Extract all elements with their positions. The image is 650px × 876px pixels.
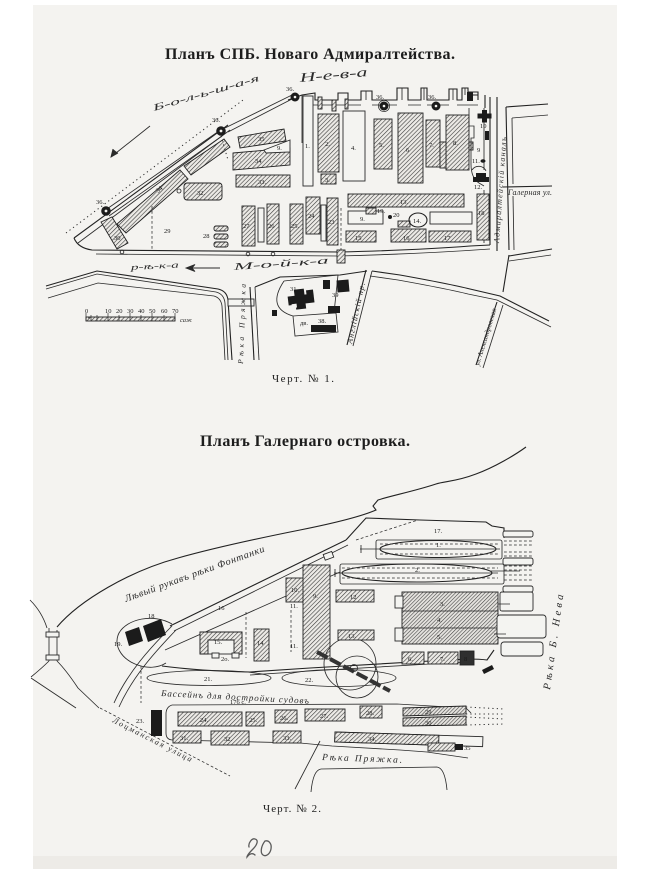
svg-text:5.: 5. xyxy=(437,634,442,641)
svg-text:8.: 8. xyxy=(453,140,458,147)
svg-text:25.: 25. xyxy=(249,717,258,724)
svg-text:32.: 32. xyxy=(197,190,206,197)
svg-text:8: 8 xyxy=(464,656,467,663)
svg-text:7.: 7. xyxy=(429,142,434,149)
svg-text:3.: 3. xyxy=(440,601,445,608)
svg-text:33.: 33. xyxy=(283,735,292,742)
svg-text:18: 18 xyxy=(148,613,155,620)
svg-text:29: 29 xyxy=(425,709,432,716)
svg-text:13.: 13. xyxy=(400,199,409,206)
svg-text:27.: 27. xyxy=(320,713,329,720)
svg-text:Черт. № 1.: Черт. № 1. xyxy=(272,373,334,385)
svg-text:Галерная ул.: Галерная ул. xyxy=(507,188,552,197)
svg-text:11.: 11. xyxy=(472,158,480,165)
svg-text:23.: 23. xyxy=(136,718,145,725)
svg-text:15: 15 xyxy=(355,235,362,242)
svg-text:саж: саж xyxy=(180,317,192,324)
svg-text:39: 39 xyxy=(332,292,339,299)
svg-text:60: 60 xyxy=(161,308,168,315)
svg-text:16: 16 xyxy=(218,605,225,612)
svg-text:Планъ СПБ. Новаго Адмиралтейст: Планъ СПБ. Новаго Адмиралтейства. xyxy=(165,46,455,63)
svg-text:31: 31 xyxy=(290,286,297,293)
svg-text:9.: 9. xyxy=(277,145,282,152)
svg-text:1.: 1. xyxy=(305,143,310,150)
svg-text:19.: 19. xyxy=(114,641,123,648)
svg-text:17: 17 xyxy=(444,235,451,242)
svg-text:10: 10 xyxy=(480,123,487,130)
svg-text:2.: 2. xyxy=(325,141,330,148)
svg-text:22.: 22. xyxy=(305,677,314,684)
svg-text:30: 30 xyxy=(127,308,134,315)
svg-text:1.: 1. xyxy=(436,542,441,549)
svg-text:34.: 34. xyxy=(368,736,377,743)
svg-text:32.: 32. xyxy=(224,736,233,743)
svg-text:34: 34 xyxy=(255,158,262,165)
svg-text:23: 23 xyxy=(328,219,335,226)
svg-text:17.: 17. xyxy=(434,528,443,535)
svg-text:30: 30 xyxy=(425,720,432,727)
svg-text:12: 12 xyxy=(350,594,357,601)
svg-text:36.: 36. xyxy=(428,94,437,101)
svg-text:Черт. № 2.: Черт. № 2. xyxy=(263,803,321,815)
svg-text:36.: 36. xyxy=(286,86,295,93)
svg-text:40: 40 xyxy=(138,308,145,315)
svg-text:20: 20 xyxy=(116,308,123,315)
svg-text:6.: 6. xyxy=(408,656,413,663)
svg-text:36.: 36. xyxy=(96,199,105,206)
svg-text:11.: 11. xyxy=(290,603,298,610)
svg-text:50: 50 xyxy=(149,308,156,315)
svg-text:35: 35 xyxy=(464,745,471,752)
svg-text:20: 20 xyxy=(393,212,400,219)
svg-text:30: 30 xyxy=(114,235,121,242)
svg-text:31.: 31. xyxy=(180,735,189,742)
svg-text:дв.: дв. xyxy=(300,320,308,327)
svg-text:9.: 9. xyxy=(313,593,318,600)
svg-text:12.: 12. xyxy=(474,184,483,191)
svg-text:21.: 21. xyxy=(204,676,213,683)
svg-text:2o.: 2o. xyxy=(221,656,230,663)
svg-text:4.: 4. xyxy=(351,145,356,152)
svg-text:26.: 26. xyxy=(280,715,289,722)
svg-text:24.: 24. xyxy=(200,717,209,724)
svg-text:4.: 4. xyxy=(437,617,442,624)
svg-text:25.: 25. xyxy=(291,223,300,230)
svg-text:28: 28 xyxy=(203,233,210,240)
svg-text:36.: 36. xyxy=(376,94,385,101)
svg-text:27: 27 xyxy=(243,223,250,230)
svg-text:36.: 36. xyxy=(212,117,221,124)
svg-text:35: 35 xyxy=(258,136,265,143)
svg-text:14.: 14. xyxy=(413,218,422,225)
svg-text:29: 29 xyxy=(164,228,171,235)
svg-text:14: 14 xyxy=(257,640,264,647)
svg-text:38.: 38. xyxy=(318,318,327,325)
svg-text:9.: 9. xyxy=(360,216,365,223)
svg-text:10.: 10. xyxy=(291,587,300,594)
svg-text:0: 0 xyxy=(85,308,88,315)
svg-text:18: 18 xyxy=(478,210,485,217)
svg-text:16: 16 xyxy=(403,235,410,242)
svg-text:3.: 3. xyxy=(325,177,330,184)
svg-text:28.: 28. xyxy=(366,710,375,717)
svg-text:26: 26 xyxy=(268,223,275,230)
svg-text:15.: 15. xyxy=(214,639,223,646)
svg-text:24: 24 xyxy=(308,213,315,220)
svg-text:7.: 7. xyxy=(440,656,445,663)
svg-text:70: 70 xyxy=(172,308,179,315)
svg-text:10: 10 xyxy=(105,308,112,315)
svg-text:33.: 33. xyxy=(258,179,267,186)
svg-text:19.: 19. xyxy=(377,208,386,215)
svg-text:13.: 13. xyxy=(348,633,357,640)
svg-text:5.: 5. xyxy=(379,142,384,149)
svg-text:Планъ Галернаго островка.: Планъ Галернаго островка. xyxy=(200,433,410,450)
svg-text:9: 9 xyxy=(477,147,480,154)
